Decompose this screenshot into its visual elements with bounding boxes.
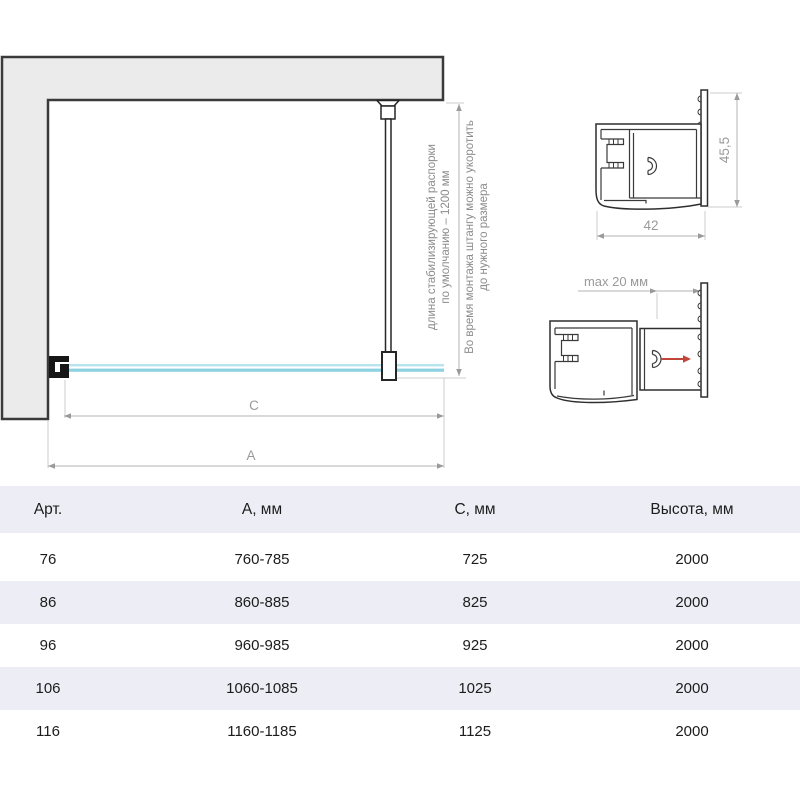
cell-c: 1025 xyxy=(428,680,522,697)
cell-height: 2000 xyxy=(522,594,800,611)
spec-table: Арт. А, мм С, мм Высота, мм 76 760-785 7… xyxy=(0,486,800,753)
max-extension-label: max 20 мм xyxy=(584,274,648,289)
table-row: 86 860-885 825 2000 xyxy=(0,581,800,624)
elevation-view: C A длина стабилизирующей распорки по ум… xyxy=(2,57,490,469)
table-row: 116 1160-1185 1125 2000 xyxy=(0,710,800,753)
cell-height: 2000 xyxy=(522,551,800,568)
profile2-wall-flange xyxy=(701,283,708,397)
profile-height-label: 45,5 xyxy=(717,137,732,163)
profile-width-label: 42 xyxy=(643,218,658,233)
note-default-line1: длина стабилизирующей распорки xyxy=(426,144,438,330)
dimension-c: C xyxy=(64,398,444,419)
spec-table-header: Арт. А, мм С, мм Высота, мм xyxy=(0,486,800,533)
cell-height: 2000 xyxy=(522,680,800,697)
profile-body xyxy=(596,124,701,209)
cell-c: 925 xyxy=(428,637,522,654)
annotation-shorten: Во время монтажа штангу можно укоротить … xyxy=(464,120,490,354)
header-c-mm: С, мм xyxy=(428,501,522,519)
dim-c-label: C xyxy=(249,398,259,413)
table-row: 106 1060-1085 1025 2000 xyxy=(0,667,800,710)
cell-a: 1060-1085 xyxy=(96,680,428,697)
ceiling-mount xyxy=(377,101,399,107)
header-art: Арт. xyxy=(0,501,96,519)
spec-table-body: 76 760-785 725 2000 86 860-885 825 2000 … xyxy=(0,538,800,753)
wall-profile-bracket xyxy=(49,356,69,378)
glass-clamp xyxy=(382,352,396,380)
wall-flange xyxy=(701,90,708,206)
dimension-max-extension: max 20 мм xyxy=(578,274,701,319)
table-row: 96 960-985 925 2000 xyxy=(0,624,800,667)
stabilizing-bar xyxy=(377,101,399,381)
extension-lines xyxy=(48,103,466,468)
cell-a: 860-885 xyxy=(96,594,428,611)
cell-a: 960-985 xyxy=(96,637,428,654)
cell-art: 116 xyxy=(0,723,96,740)
diagram-stage: C A длина стабилизирующей распорки по ум… xyxy=(0,0,800,486)
cell-c: 725 xyxy=(428,551,522,568)
cell-height: 2000 xyxy=(522,723,800,740)
cell-art: 106 xyxy=(0,680,96,697)
table-row: 76 760-785 725 2000 xyxy=(0,538,800,581)
cell-c: 1125 xyxy=(428,723,522,740)
dim-a-label: A xyxy=(246,448,255,463)
ceiling-mount-block xyxy=(381,106,395,119)
header-height-mm: Высота, мм xyxy=(522,501,800,519)
header-a-mm: А, мм xyxy=(96,501,428,519)
profile-section-closed: 45,5 42 xyxy=(596,90,742,240)
cell-art: 76 xyxy=(0,551,96,568)
note-shorten-line2: до нужного размера xyxy=(478,183,490,291)
note-shorten-line1: Во время монтажа штангу можно укоротить xyxy=(464,120,476,354)
cell-c: 825 xyxy=(428,594,522,611)
cell-height: 2000 xyxy=(522,637,800,654)
dimension-bar-length xyxy=(456,104,462,376)
technical-drawing: C A длина стабилизирующей распорки по ум… xyxy=(0,0,800,486)
note-default-line2: по умолчанию – 1200 мм xyxy=(440,170,452,303)
dimension-profile-height: 45,5 xyxy=(708,93,742,207)
cell-a: 1160-1185 xyxy=(96,723,428,740)
dimension-a: A xyxy=(48,448,444,469)
annotation-default-length: длина стабилизирующей распорки по умолча… xyxy=(426,144,452,330)
profile-section-extended: max 20 мм xyxy=(550,274,708,403)
bar-rod xyxy=(386,119,392,352)
cell-art: 86 xyxy=(0,594,96,611)
cell-a: 760-785 xyxy=(96,551,428,568)
dimension-profile-width: 42 xyxy=(597,211,705,240)
cell-art: 96 xyxy=(0,637,96,654)
